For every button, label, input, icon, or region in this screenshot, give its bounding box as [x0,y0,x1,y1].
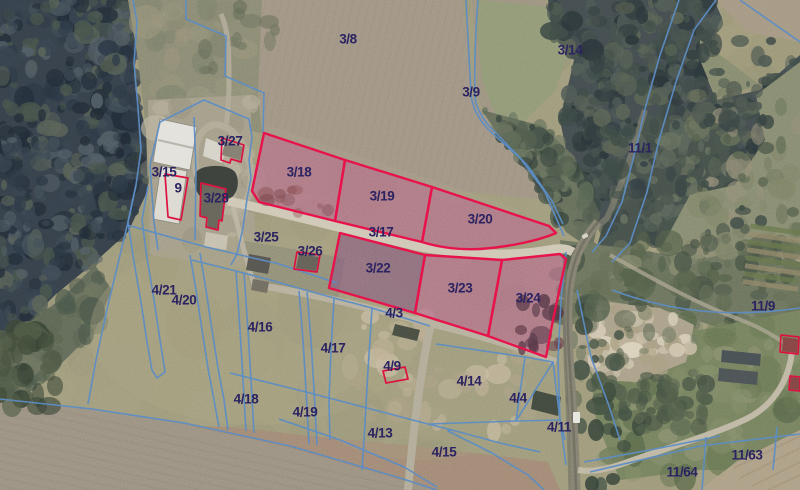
svg-text:3/20: 3/20 [468,212,493,227]
svg-text:3/8: 3/8 [339,32,357,47]
svg-text:11/9: 11/9 [751,299,775,314]
svg-text:4/3: 4/3 [385,306,403,321]
svg-text:4/17: 4/17 [321,341,346,356]
svg-text:3/19: 3/19 [370,189,395,204]
svg-text:3/25: 3/25 [254,230,280,245]
svg-text:4/15: 4/15 [432,445,458,460]
svg-text:9: 9 [174,181,181,196]
svg-text:4/16: 4/16 [248,320,274,335]
svg-text:11/1: 11/1 [628,141,653,156]
svg-text:4/14: 4/14 [457,374,483,389]
svg-text:3/14: 3/14 [558,43,584,58]
svg-text:4/20: 4/20 [172,293,197,308]
svg-text:4/4: 4/4 [509,391,527,406]
svg-text:3/18: 3/18 [287,165,313,180]
svg-text:4/18: 4/18 [234,392,260,407]
svg-text:11/63: 11/63 [731,448,763,463]
svg-text:3/28: 3/28 [204,191,230,206]
svg-text:3/26: 3/26 [298,244,324,259]
svg-text:3/22: 3/22 [366,261,391,276]
svg-text:4/11: 4/11 [547,420,572,435]
svg-text:3/15: 3/15 [152,165,178,180]
svg-text:4/9: 4/9 [383,359,401,374]
svg-text:3/9: 3/9 [462,85,480,100]
svg-text:4/13: 4/13 [368,426,394,441]
svg-text:3/23: 3/23 [448,281,474,296]
svg-text:11/64: 11/64 [666,465,698,480]
svg-text:3/24: 3/24 [516,291,542,306]
svg-text:3/17: 3/17 [369,225,394,240]
svg-text:3/27: 3/27 [218,134,243,149]
svg-text:4/19: 4/19 [293,405,318,420]
